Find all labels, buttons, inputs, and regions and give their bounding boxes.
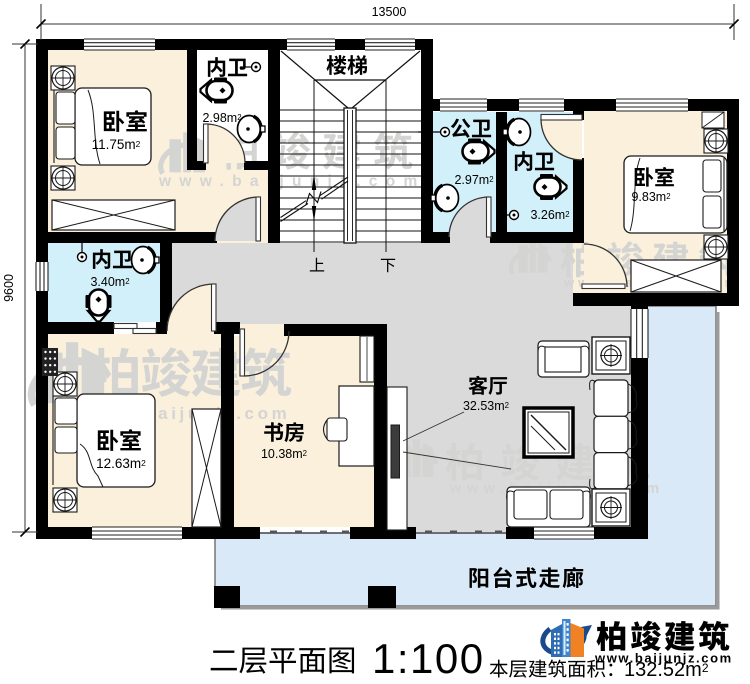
svg-text:2.97m2: 2.97m2 xyxy=(454,173,493,187)
svg-text:32.53m2: 32.53m2 xyxy=(463,399,509,413)
svg-text:13500: 13500 xyxy=(372,5,407,19)
svg-text:3.26m2: 3.26m2 xyxy=(530,208,569,222)
svg-text:3.40m2: 3.40m2 xyxy=(90,275,129,289)
svg-text:10.38m2: 10.38m2 xyxy=(261,447,307,461)
svg-text:9600: 9600 xyxy=(2,274,16,302)
svg-text:12.63m2: 12.63m2 xyxy=(96,456,146,471)
svg-text:1:100: 1:100 xyxy=(372,635,485,682)
svg-text:11.75m2: 11.75m2 xyxy=(92,137,141,152)
svg-text:2.98m2: 2.98m2 xyxy=(202,111,241,125)
svg-text:www.baijunjz.com: www.baijunjz.com xyxy=(594,651,733,666)
svg-text:9.83m2: 9.83m2 xyxy=(631,190,670,204)
